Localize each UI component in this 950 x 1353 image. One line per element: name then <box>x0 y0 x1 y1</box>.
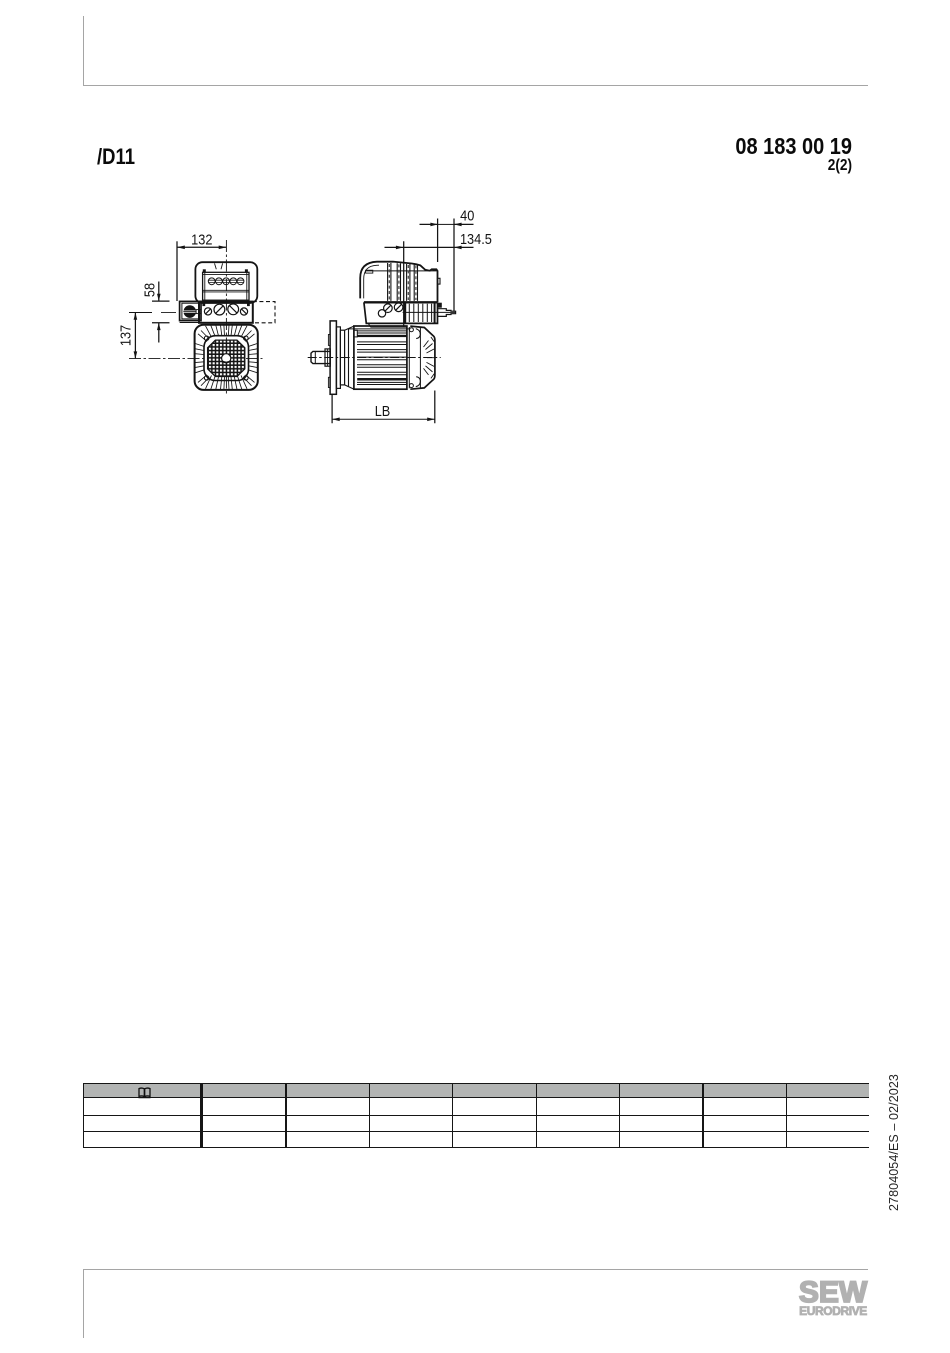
svg-text:132: 132 <box>191 230 212 247</box>
svg-text:58: 58 <box>140 283 157 297</box>
svg-text:137: 137 <box>117 325 134 346</box>
svg-text:40: 40 <box>460 206 474 223</box>
svg-text:134.5: 134.5 <box>460 230 492 247</box>
svg-text:LB: LB <box>375 402 391 419</box>
